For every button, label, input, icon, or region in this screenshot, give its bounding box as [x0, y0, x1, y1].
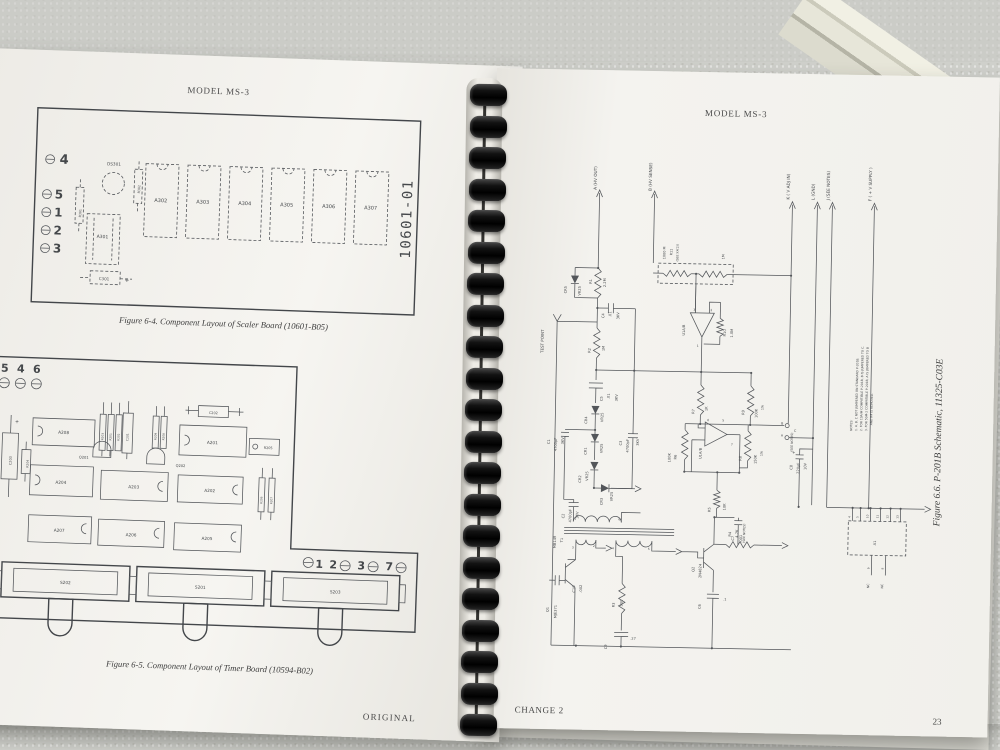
- change-2-footer: CHANGE 2: [515, 704, 564, 715]
- diagram-label: 2: [53, 223, 62, 237]
- diagram-label: 1%: [760, 405, 764, 410]
- diagram-label: R207: [269, 497, 273, 505]
- diagram-label: C202: [209, 411, 218, 415]
- diagram-label: 5: [855, 516, 859, 518]
- diagram-label: 10K: [723, 503, 727, 511]
- timer-callout-terminals: [0, 378, 41, 389]
- binding-ring: [468, 178, 505, 201]
- diagram-label: 9: [866, 567, 870, 569]
- diagram-label: 4: [59, 153, 69, 168]
- diagram-label: 6: [707, 418, 709, 422]
- diagram-label: CR1: [584, 447, 588, 454]
- diagram-label: 5: [722, 418, 724, 422]
- binding-ring: [466, 336, 503, 359]
- diagram-label: U1A/B: [682, 324, 686, 336]
- diagram-label: 1: [697, 344, 699, 348]
- diagram-label: A206: [126, 532, 137, 537]
- original-footer: ORIGINAL: [363, 711, 416, 723]
- diagram-label: R2: [588, 348, 592, 353]
- diagram-label: 3: [693, 308, 695, 312]
- junction-dot: [633, 370, 635, 372]
- diagram-label: 1: [574, 517, 576, 521]
- diagram-label: +: [15, 419, 19, 425]
- diagram-label: C4: [601, 313, 605, 319]
- diagram-label: 4700pF: [554, 438, 558, 452]
- diagram-label: 6: [33, 363, 41, 376]
- diagram-label: VR25: [610, 492, 614, 502]
- diagram-label: R204: [25, 460, 29, 468]
- binding-ring: [465, 399, 502, 422]
- diagram-label: J (SEE NOTES): [826, 171, 832, 202]
- diagram-label: R7: [691, 409, 695, 414]
- diagram-label: 4700pF: [626, 439, 630, 453]
- diagram-label: A204: [55, 480, 66, 485]
- diagram-label: 1: [54, 205, 63, 219]
- junction-dot: [749, 424, 751, 426]
- diagram-label: Q201: [79, 455, 89, 459]
- diagram-label: (SEE XX(2)): [675, 244, 679, 261]
- diagram-label: .01: [608, 311, 612, 317]
- junction-dot: [869, 507, 871, 509]
- junction-dot: [683, 471, 685, 473]
- diagram-label: A (HV OUT): [593, 166, 598, 190]
- diagram-label: 5: [1, 362, 9, 375]
- diagram-label: K ( V ADJ IN): [786, 173, 792, 199]
- binding-ring: [464, 430, 501, 453]
- photo-of-open-manual: { "left_page": { "header": "MODEL MS-3",…: [0, 0, 1000, 750]
- diagram-label: S203: [330, 589, 341, 594]
- junction-dot: [700, 371, 702, 373]
- diagram-label: R302: [137, 185, 141, 193]
- diagram-label: 4: [847, 516, 851, 518]
- diagram-label: A305: [280, 202, 293, 208]
- binding-ring: [460, 714, 497, 737]
- scaler-discrete-components: [73, 159, 143, 285]
- diagram-label: 2.2M: [603, 278, 607, 287]
- diagram-label: C2: [561, 514, 565, 519]
- diagram-label: R201: [108, 433, 112, 441]
- diagram-label: MJE371: [553, 605, 557, 618]
- junction-dot: [595, 369, 597, 371]
- diagram-label: .002: [579, 585, 583, 593]
- diagram-label: A301: [97, 234, 109, 240]
- switch-shaft: [182, 603, 207, 641]
- diagram-label: B (HV SENSE): [648, 162, 654, 191]
- junction-dot: [867, 507, 869, 509]
- diagram-label: C1: [547, 439, 551, 444]
- diagram-label: A303: [196, 199, 209, 205]
- scaler-and-timer-board-diagrams: 45123DS301R302R301A301C301+A302A303A304A…: [0, 48, 523, 742]
- diagram-label: 1M: [602, 346, 606, 351]
- diagram-label: NC: [866, 583, 870, 588]
- junction-dot: [695, 273, 697, 275]
- diagram-label: .1: [723, 597, 726, 601]
- diagram-label: CR5: [564, 286, 568, 293]
- diagram-label: 1K: [704, 406, 708, 411]
- diagram-label: 100K: [667, 452, 671, 462]
- diagram-label: 6: [618, 517, 620, 521]
- diagram-label: Q1: [546, 607, 550, 612]
- binding-ring: [467, 241, 504, 264]
- junction-dot: [713, 516, 715, 518]
- binding-ring: [463, 525, 500, 548]
- junction-dot: [812, 437, 814, 439]
- junction-dot: [790, 275, 792, 277]
- junction-dot: [851, 507, 853, 509]
- diagram-label: A302: [154, 198, 167, 204]
- junction-dot: [879, 507, 881, 509]
- diagram-label: CR3: [600, 498, 604, 505]
- diagram-label: 10V: [803, 462, 807, 470]
- binding-ring: [463, 493, 500, 516]
- diagram-label: A304: [238, 201, 251, 207]
- junction-dot: [889, 508, 891, 510]
- diagram-label: C5: [600, 396, 604, 401]
- diagram-label: C3: [619, 441, 623, 446]
- diagram-label: 12: [885, 515, 889, 519]
- diagram-label: R208: [161, 433, 165, 441]
- diagram-label: 3KV: [615, 394, 619, 402]
- binding-ring: [468, 210, 505, 233]
- junction-dot: [596, 307, 598, 309]
- diagram-label: A307: [364, 205, 377, 211]
- diagram-label: VR25: [600, 413, 604, 423]
- junction-dot: [750, 372, 752, 374]
- diagram-label: 13: [895, 515, 899, 519]
- diagram-label: R11: [669, 249, 673, 256]
- diagram-label: 2: [593, 544, 595, 548]
- diagram-label: C8: [789, 464, 793, 470]
- diagram-label: 2: [329, 558, 337, 571]
- diagram-label: 100K: [754, 408, 758, 418]
- diagram-label: 3: [357, 559, 365, 572]
- diagram-label: R9: [741, 409, 745, 415]
- diagram-label: 4: [612, 546, 614, 550]
- diagram-label: NOTES:: [849, 420, 853, 431]
- diagram-label: A207: [54, 528, 65, 533]
- c203-capacitor: [1, 433, 19, 480]
- switch-shaft: [48, 598, 73, 636]
- diagram-label: A202: [204, 488, 215, 493]
- diagram-label: DS301: [107, 161, 121, 166]
- junction-dot: [711, 647, 713, 649]
- diagram-label: 3: [53, 241, 62, 255]
- diagram-label: R1: [589, 279, 593, 284]
- right-page: MODEL MS-3: [484, 68, 1000, 738]
- diagram-label: VR25: [600, 444, 604, 454]
- diagram-label: .27: [630, 637, 635, 641]
- binding-ring: [461, 651, 498, 674]
- diagram-label: A203: [128, 484, 139, 489]
- diagram-label: C203: [8, 456, 12, 465]
- a1-connector-box: [848, 521, 907, 556]
- diagram-label: MB149: [553, 535, 557, 548]
- diagram-label: R8: [739, 455, 743, 461]
- diagram-label: +: [124, 277, 129, 284]
- diagram-label: 1M: [721, 254, 725, 259]
- diagram-label: U1A/B: [699, 447, 703, 459]
- diagram-label: R202: [116, 433, 120, 441]
- diagram-label: A201: [207, 440, 218, 445]
- junction-dot: [899, 508, 901, 510]
- diagram-label: R301: [78, 209, 82, 217]
- junction-dot: [798, 506, 800, 508]
- p201b-schematic: A (HV OUT)B (HV SENSE)K ( V ADJ IN)L (GN…: [484, 68, 1000, 738]
- timer-discrete-components: [0, 397, 281, 521]
- diagram-label: CR4: [584, 416, 588, 424]
- binding-ring: [466, 304, 503, 327]
- diagram-label: F ( + V SUPPLY ): [868, 167, 874, 201]
- diagram-label: .001: [739, 535, 743, 543]
- diagram-label: 10601-01: [398, 179, 417, 259]
- binding-ring: [469, 147, 506, 170]
- diagram-label: R6: [674, 454, 678, 460]
- diagram-label: R206: [259, 496, 263, 504]
- diagram-label: 1.0M: [730, 329, 734, 338]
- binding-ring: [465, 367, 502, 390]
- diagram-label: R203: [100, 433, 104, 441]
- binding-ring: [464, 462, 501, 485]
- q202-transistor: [147, 448, 166, 465]
- diagram-label: 4700pF: [568, 509, 572, 523]
- diagram-label: 8: [880, 567, 884, 569]
- diagram-label: 3: [572, 546, 574, 550]
- diagram-label: S202: [60, 580, 71, 585]
- diagram-label: R3: [612, 603, 616, 608]
- diagram-label: C6: [698, 603, 702, 609]
- diagram-label: 3KV: [616, 312, 620, 320]
- switch-shaft: [317, 608, 342, 646]
- diagram-label: A: [781, 434, 784, 438]
- diagram-label: .01: [607, 393, 611, 399]
- diagram-label: B: [781, 422, 783, 426]
- diagram-label: C301: [99, 276, 110, 281]
- diagram-label: 10: [865, 514, 869, 518]
- resistor-symbols: [588, 268, 759, 616]
- diagram-label: Q2: [691, 567, 695, 572]
- diagram-label: C9: [604, 644, 608, 650]
- diagram-label: Q202: [176, 464, 186, 468]
- ds301-lamp: [102, 172, 125, 195]
- diagram-label: T1: [560, 538, 564, 544]
- diagram-label: 1%: [760, 451, 764, 456]
- diagram-label: 2N4824: [698, 563, 702, 578]
- scaler-callout-terminals: [40, 155, 54, 253]
- diagram-label: 3KV: [636, 438, 640, 446]
- scaler-ic-row: [144, 164, 389, 245]
- diagram-label: S201: [195, 585, 206, 590]
- scaler-board-outline: [31, 108, 421, 315]
- binding-ring: [467, 273, 504, 296]
- diagram-label: 1000 M: [662, 247, 666, 260]
- junction-dot: [575, 645, 577, 647]
- diagram-label: 11: [875, 515, 879, 519]
- page-number-23: 23: [932, 716, 941, 726]
- diagram-label: C201: [125, 433, 129, 441]
- junction-dot: [716, 471, 718, 473]
- c201-capacitor: [122, 413, 133, 453]
- diagram-label: 2: [710, 308, 712, 312]
- junction-dot: [593, 487, 595, 489]
- junction-dot: [594, 429, 596, 431]
- diagram-label: 1: [315, 558, 323, 571]
- diagram-label: 150K: [753, 454, 757, 464]
- binding-ring: [462, 556, 499, 579]
- diagram-label: 220µF: [796, 463, 800, 474]
- diagram-label: 7: [731, 443, 733, 447]
- diagram-label: 5: [55, 187, 64, 201]
- diagram-label: R209: [153, 433, 157, 441]
- diagram-label: A205: [202, 536, 213, 541]
- junction-dot: [699, 423, 701, 425]
- junction-dot: [859, 507, 861, 509]
- timer-board-outline: [0, 357, 424, 633]
- junction-dot: [738, 472, 740, 474]
- timer-switch-row: [0, 562, 406, 648]
- diagram-label: R4: [728, 531, 732, 537]
- diagram-label: 4: [17, 362, 25, 375]
- diagram-label: NC: [880, 583, 884, 588]
- diagram-label: VR25: [585, 471, 589, 481]
- diagram-label: VR25: [578, 286, 582, 296]
- diagram-label: 5: [648, 547, 650, 551]
- diagram-label: C10: [572, 585, 576, 593]
- schematic-linework: [547, 189, 937, 652]
- binding-ring: [461, 619, 498, 642]
- diagram-label: AND R4 IS REMOVED.: [869, 393, 874, 425]
- diagram-label: L (GND): [811, 183, 816, 200]
- diagram-label: 3KV: [561, 437, 565, 445]
- diagram-label: R205: [264, 446, 273, 450]
- diagram-label: C: [794, 429, 797, 433]
- binding-ring: [460, 682, 497, 705]
- diagram-label: 7: [385, 560, 393, 573]
- binding-ring: [469, 115, 506, 138]
- junction-dot: [620, 645, 622, 647]
- diagram-label: CR2: [578, 475, 582, 482]
- binding-ring: [470, 84, 507, 107]
- diagram-label: A208: [58, 430, 69, 435]
- diagram-label: A1: [873, 541, 877, 546]
- diagram-label: +: [792, 450, 795, 455]
- left-page: MODEL MS-3: [0, 48, 523, 742]
- binding-ring: [462, 588, 499, 611]
- diagram-label: C7: [731, 536, 735, 541]
- diagram-label: A306: [322, 204, 335, 210]
- diagram-label: R5: [708, 507, 712, 512]
- diagram-label: TEST POINT: [540, 329, 545, 354]
